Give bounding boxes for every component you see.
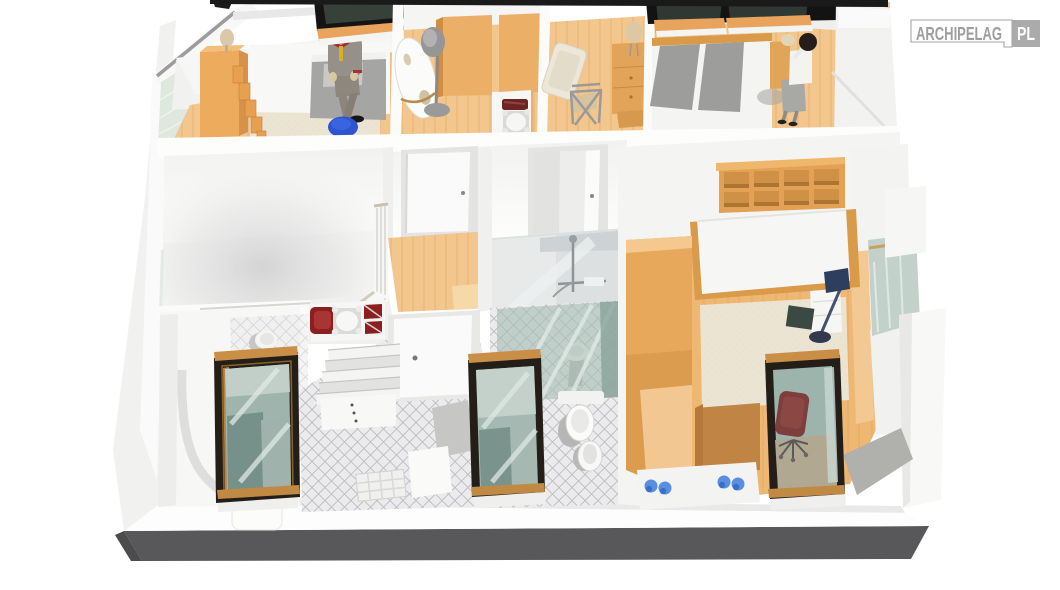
svg-text:ARCHIPELAG: ARCHIPELAG [916, 24, 1002, 44]
svg-text:PL: PL [1017, 24, 1035, 44]
